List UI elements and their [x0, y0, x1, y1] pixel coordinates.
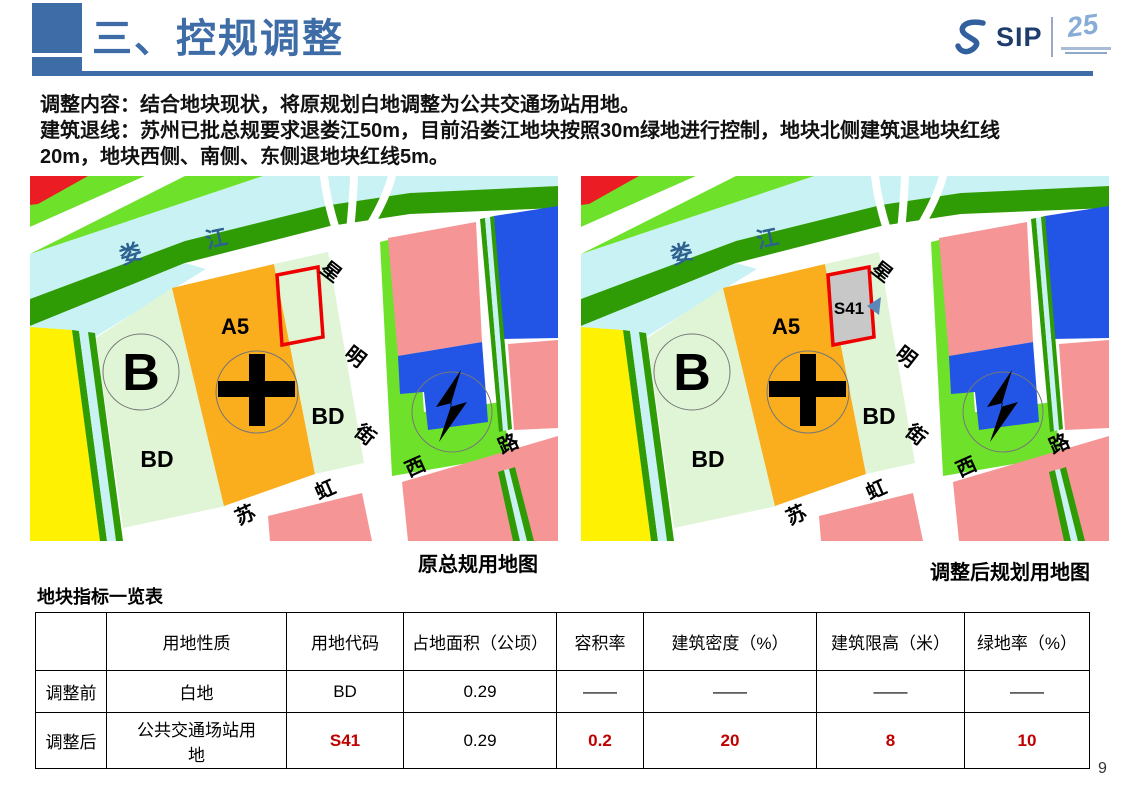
- parcel-pink-1: [388, 222, 482, 356]
- sip-swoosh-icon: [952, 16, 992, 58]
- header-empty: [36, 613, 107, 671]
- cell-before-code: BD: [287, 671, 404, 713]
- parcel-label-a5: A5: [221, 314, 249, 339]
- parcel-label-b: B: [122, 344, 160, 402]
- map-adjusted-plan: BBDBDA5娄江星明街苏虹西路S41: [581, 176, 1109, 541]
- cell-before-height: ——: [817, 671, 965, 713]
- intro-line-setback: 建筑退线：苏州已批总规要求退娄江50m，目前沿娄江地块按照30m绿地进行控制，地…: [40, 118, 1042, 170]
- caption-adjusted-map: 调整后规划用地图: [930, 556, 1090, 585]
- header-density: 建筑密度（%）: [644, 613, 817, 671]
- parcel-blue-1: [1045, 206, 1109, 339]
- cell-before-far: ——: [557, 671, 644, 713]
- parcel-label-bd-left: BD: [140, 446, 173, 472]
- table-row-after: 调整后 公共交通场站用地 S41 0.29 0.2 20 8 10: [36, 713, 1090, 769]
- indicators-table: 用地性质 用地代码 占地面积（公顷） 容积率 建筑密度（%） 建筑限高（米） 绿…: [35, 612, 1090, 769]
- parcel-label-s41: S41: [834, 299, 864, 318]
- cell-after-density: 20: [644, 713, 817, 769]
- parcel-label-bd-right: BD: [311, 403, 344, 429]
- header-area: 占地面积（公顷）: [404, 613, 557, 671]
- header-height-limit: 建筑限高（米）: [817, 613, 965, 671]
- page-title: 三、控规调整: [92, 6, 344, 64]
- parcel-label-b: B: [673, 344, 711, 402]
- cell-after-far: 0.2: [557, 713, 644, 769]
- cross-icon-v: [249, 354, 265, 426]
- cell-after-green: 10: [965, 713, 1090, 769]
- cell-before-density: ——: [644, 671, 817, 713]
- parcel-blue-1: [494, 206, 558, 339]
- parcel-label-bd-left: BD: [691, 446, 724, 472]
- parcel-pink-2: [508, 340, 558, 430]
- table-title: 地块指标一览表: [37, 583, 163, 609]
- table-row-before: 调整前 白地 BD 0.29 —— —— —— ——: [36, 671, 1090, 713]
- parcel-label-a5: A5: [772, 314, 800, 339]
- slide: 三、控规调整 SIP 25 调整内容：结合地块现状，将原规划白地调整为公共交通场…: [0, 0, 1123, 794]
- intro-text: 调整内容：结合地块现状，将原规划白地调整为公共交通场站用地。 建筑退线：苏州已批…: [40, 92, 1042, 170]
- map-original-plan: BBDBDA5娄江星明街苏虹西路: [30, 176, 558, 541]
- anniversary-tagline-bar: [1061, 47, 1111, 50]
- cell-before-green: ——: [965, 671, 1090, 713]
- header-land-use: 用地性质: [107, 613, 287, 671]
- cell-after-area: 0.29: [404, 713, 557, 769]
- table-header-row: 用地性质 用地代码 占地面积（公顷） 容积率 建筑密度（%） 建筑限高（米） 绿…: [36, 613, 1090, 671]
- header-land-code: 用地代码: [287, 613, 404, 671]
- anniversary-25-logo: 25: [1061, 14, 1119, 60]
- parcel-label-bd-right: BD: [862, 403, 895, 429]
- parcel-pink-1: [939, 222, 1033, 356]
- landuse-map-svg: BBDBDA5娄江星明街苏虹西路: [30, 176, 558, 541]
- cell-before-area: 0.29: [404, 671, 557, 713]
- sip-logo-text: SIP: [996, 22, 1043, 53]
- anniversary-tagline-bar2: [1065, 52, 1107, 54]
- title-decoration-square: [32, 3, 82, 53]
- cell-after-height: 8: [817, 713, 965, 769]
- sip-logo: SIP 25: [952, 14, 1119, 60]
- row-label-after: 调整后: [36, 713, 107, 769]
- page-number: 9: [1098, 760, 1107, 778]
- header-rule: [32, 71, 1093, 76]
- cell-after-code: S41: [287, 713, 404, 769]
- cell-after-landuse: 公共交通场站用地: [107, 713, 287, 769]
- title-decoration-bar: [32, 57, 82, 71]
- intro-line-adjustment: 调整内容：结合地块现状，将原规划白地调整为公共交通场站用地。: [40, 92, 1042, 118]
- row-label-before: 调整前: [36, 671, 107, 713]
- logo-divider: [1051, 17, 1053, 57]
- cell-before-landuse: 白地: [107, 671, 287, 713]
- caption-original-map: 原总规用地图: [418, 548, 538, 577]
- cross-icon-v: [800, 354, 816, 426]
- parcel-pink-2: [1059, 340, 1109, 430]
- header-far: 容积率: [557, 613, 644, 671]
- anniversary-25-number: 25: [1064, 8, 1099, 44]
- header-green-rate: 绿地率（%）: [965, 613, 1090, 671]
- landuse-map-svg: BBDBDA5娄江星明街苏虹西路S41: [581, 176, 1109, 541]
